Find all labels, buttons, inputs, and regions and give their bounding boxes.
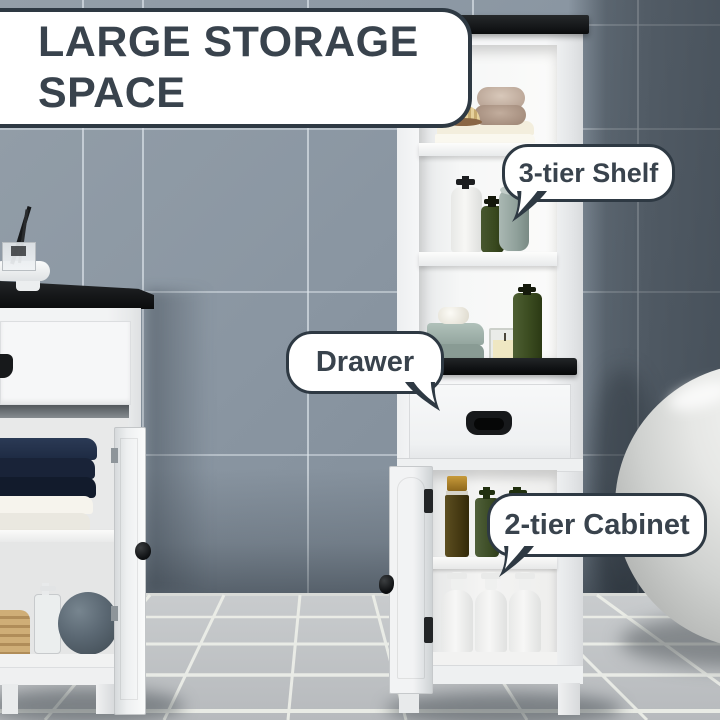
white-lotion-spout: [456, 179, 475, 185]
wicker-basket: [0, 610, 30, 658]
amber-bottle-cap: [447, 476, 467, 491]
tower-door-panel: [397, 477, 425, 679]
callout-drawer-label: Drawer: [316, 346, 414, 379]
vanity-floor-shadow: [0, 688, 184, 720]
clear-dispenser: [34, 594, 61, 654]
drawer-handle-recess: [474, 418, 504, 430]
white-pump-spout: [447, 573, 467, 579]
vanity-shelf-board: [0, 530, 129, 542]
tower-drawer-handle: [466, 411, 512, 435]
callout-drawer: Drawer: [286, 331, 444, 394]
headline-line2: SPACE: [38, 68, 468, 119]
vanity-door-knob: [135, 542, 151, 560]
green-lotion-spout: [484, 199, 500, 204]
tower-leg: [558, 683, 580, 715]
amber-bottle: [445, 495, 469, 557]
navy-towel: [0, 458, 95, 479]
vanity-door-hinge: [111, 448, 118, 463]
tower-cabinet-floor: [429, 652, 557, 665]
green-pump-spout: [479, 490, 495, 495]
green-pump-spout: [518, 287, 536, 292]
navy-towel: [0, 438, 97, 460]
tower-door-hinge: [424, 617, 433, 643]
clear-dispenser-spout: [40, 586, 56, 591]
headline-badge: LARGE STORAGE SPACE: [0, 8, 472, 128]
white-lotion-bottle: [451, 187, 482, 252]
loofah: [58, 592, 118, 655]
vanity-leg: [96, 684, 114, 714]
vanity-door-panel: [120, 438, 138, 700]
vanity-drawer: [0, 321, 131, 405]
white-pump-bottle: [509, 590, 541, 652]
diffuser-glass-cube: [2, 242, 36, 271]
headline-line1: LARGE STORAGE: [38, 17, 468, 68]
white-pump-bottle: [441, 590, 473, 652]
vanity-opening-gap: [0, 405, 129, 418]
vanity-leg: [2, 684, 18, 714]
vanity-cast-shadow: [146, 290, 210, 592]
navy-towel: [0, 477, 96, 498]
callout-cabinet-tail: [498, 544, 538, 578]
callout-drawer-tail: [401, 380, 441, 412]
callout-cabinet: 2-tier Cabinet: [487, 493, 707, 557]
callout-cabinet-label: 2-tier Cabinet: [504, 509, 689, 542]
product-scene: LARGE STORAGE SPACE 3-tier Shelf Drawer …: [0, 0, 720, 720]
candle-wick: [504, 333, 506, 341]
vanity-open-door: [114, 427, 146, 715]
white-towel: [0, 513, 90, 531]
tower-floor-shadow: [386, 692, 622, 720]
vanity-bottom-board: [0, 654, 128, 667]
green-pump-bottle: [513, 293, 542, 363]
tower-door-hinge: [424, 489, 433, 513]
vanity-door-hinge: [111, 606, 118, 621]
callout-shelf-tail: [511, 189, 551, 223]
soap-bar: [438, 307, 469, 324]
white-towel: [0, 496, 93, 514]
diffuser-liquid: [11, 246, 26, 256]
white-pump-bottle: [475, 590, 507, 652]
tower-shelf-board: [419, 252, 557, 266]
callout-shelf: 3-tier Shelf: [502, 144, 675, 202]
